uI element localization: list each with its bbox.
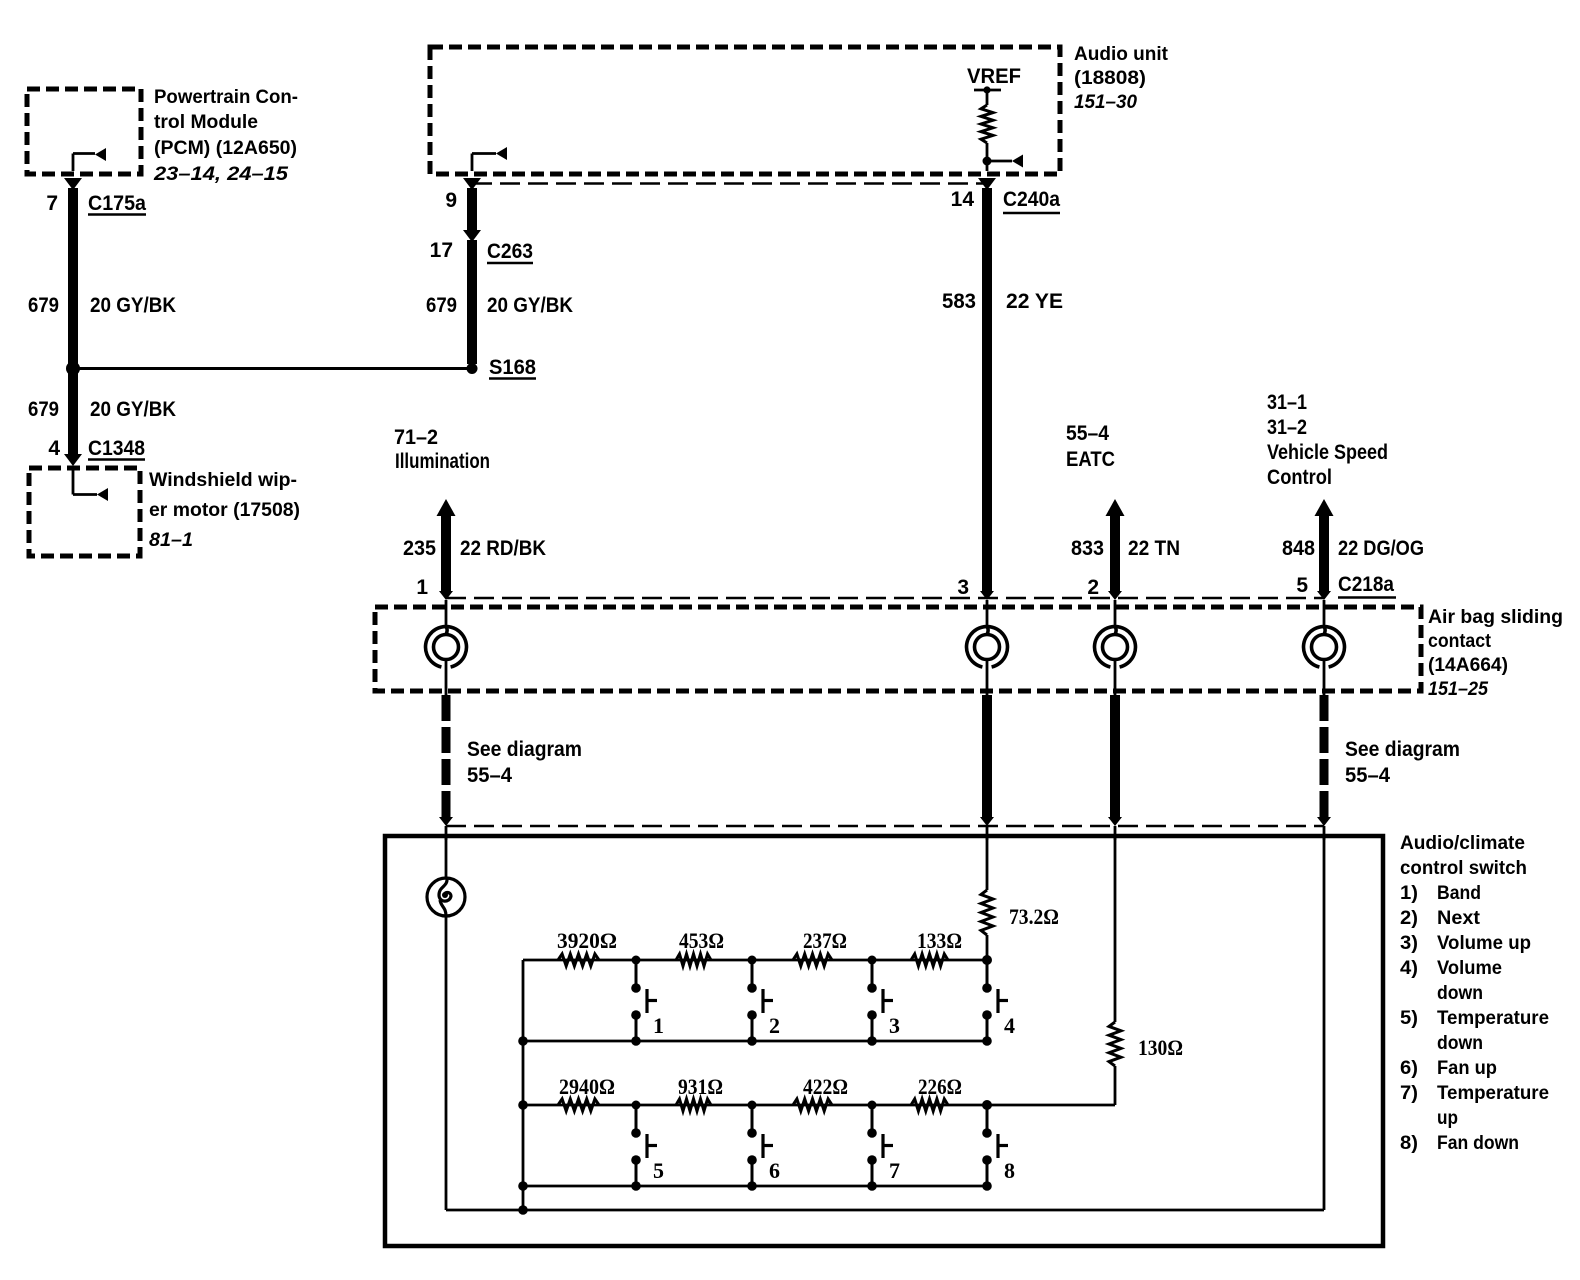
svg-text:133Ω: 133Ω bbox=[917, 928, 962, 953]
svg-text:down: down bbox=[1437, 983, 1483, 1004]
svg-text:7): 7) bbox=[1400, 1083, 1418, 1104]
svg-text:23–14, 24–15: 23–14, 24–15 bbox=[153, 164, 289, 185]
svg-text:control switch: control switch bbox=[1400, 858, 1527, 879]
svg-text:237Ω: 237Ω bbox=[803, 928, 847, 953]
svg-text:C218a: C218a bbox=[1338, 573, 1394, 596]
svg-text:4: 4 bbox=[1004, 1013, 1015, 1038]
svg-text:31–2: 31–2 bbox=[1267, 416, 1307, 439]
svg-text:151–25: 151–25 bbox=[1428, 679, 1488, 700]
svg-text:931Ω: 931Ω bbox=[678, 1074, 723, 1099]
svg-text:453Ω: 453Ω bbox=[679, 928, 724, 953]
svg-text:848: 848 bbox=[1282, 537, 1315, 560]
svg-text:71–2: 71–2 bbox=[394, 426, 438, 449]
svg-text:2940Ω: 2940Ω bbox=[559, 1074, 615, 1099]
svg-text:679: 679 bbox=[426, 294, 457, 317]
svg-text:20 GY/BK: 20 GY/BK bbox=[90, 398, 176, 421]
svg-text:3: 3 bbox=[889, 1013, 900, 1038]
svg-text:130Ω: 130Ω bbox=[1138, 1035, 1183, 1060]
svg-text:down: down bbox=[1437, 1033, 1483, 1054]
svg-text:Fan up: Fan up bbox=[1437, 1058, 1497, 1079]
svg-text:6): 6) bbox=[1400, 1058, 1418, 1079]
svg-text:C175a: C175a bbox=[88, 192, 146, 215]
svg-text:1): 1) bbox=[1400, 883, 1418, 904]
svg-text:5: 5 bbox=[653, 1158, 664, 1183]
svg-text:8: 8 bbox=[1004, 1158, 1015, 1183]
svg-text:20 GY/BK: 20 GY/BK bbox=[90, 294, 176, 317]
svg-text:Fan down: Fan down bbox=[1437, 1133, 1519, 1154]
svg-text:er motor (17508): er motor (17508) bbox=[149, 500, 300, 521]
svg-text:5): 5) bbox=[1400, 1008, 1418, 1029]
svg-text:9: 9 bbox=[445, 189, 457, 212]
svg-text:7: 7 bbox=[46, 192, 58, 215]
svg-text:679: 679 bbox=[28, 398, 59, 421]
svg-text:235: 235 bbox=[403, 537, 436, 560]
svg-text:up: up bbox=[1437, 1108, 1458, 1129]
svg-text:Air bag sliding: Air bag sliding bbox=[1428, 607, 1563, 628]
svg-text:1: 1 bbox=[653, 1013, 664, 1038]
svg-text:422Ω: 422Ω bbox=[803, 1074, 848, 1099]
svg-text:Vehicle Speed: Vehicle Speed bbox=[1267, 441, 1388, 464]
svg-text:20 GY/BK: 20 GY/BK bbox=[487, 294, 573, 317]
svg-text:5: 5 bbox=[1296, 574, 1308, 597]
svg-text:583: 583 bbox=[942, 290, 976, 313]
svg-text:VREF: VREF bbox=[967, 65, 1021, 88]
svg-text:679: 679 bbox=[28, 294, 59, 317]
svg-text:31–1: 31–1 bbox=[1267, 391, 1307, 414]
svg-text:151–30: 151–30 bbox=[1074, 92, 1137, 113]
svg-text:7: 7 bbox=[889, 1158, 900, 1183]
svg-text:2): 2) bbox=[1400, 908, 1418, 929]
svg-text:See diagram: See diagram bbox=[1345, 738, 1460, 761]
svg-text:(18808): (18808) bbox=[1074, 68, 1146, 89]
svg-text:55–4: 55–4 bbox=[467, 764, 512, 787]
svg-text:14: 14 bbox=[951, 188, 975, 211]
svg-text:Temperature: Temperature bbox=[1437, 1008, 1549, 1029]
svg-text:EATC: EATC bbox=[1066, 448, 1115, 471]
svg-text:C263: C263 bbox=[487, 240, 533, 263]
svg-text:1: 1 bbox=[416, 576, 428, 599]
svg-text:3: 3 bbox=[957, 576, 969, 599]
svg-text:55–4: 55–4 bbox=[1345, 764, 1390, 787]
svg-text:8): 8) bbox=[1400, 1133, 1418, 1154]
svg-text:17: 17 bbox=[430, 239, 453, 262]
svg-text:73.2Ω: 73.2Ω bbox=[1009, 904, 1059, 929]
svg-text:Audio/climate: Audio/climate bbox=[1400, 833, 1525, 854]
svg-text:(PCM) (12A650): (PCM) (12A650) bbox=[154, 138, 297, 159]
svg-text:Windshield wip-: Windshield wip- bbox=[149, 470, 297, 491]
svg-text:55–4: 55–4 bbox=[1066, 422, 1109, 445]
svg-text:22 TN: 22 TN bbox=[1128, 537, 1180, 560]
svg-text:22 YE: 22 YE bbox=[1006, 290, 1063, 313]
svg-text:Volume up: Volume up bbox=[1437, 933, 1531, 954]
svg-text:See diagram: See diagram bbox=[467, 738, 582, 761]
svg-text:Illumination: Illumination bbox=[395, 450, 490, 473]
svg-text:S168: S168 bbox=[489, 356, 536, 379]
svg-text:2: 2 bbox=[769, 1013, 780, 1038]
svg-text:226Ω: 226Ω bbox=[918, 1074, 962, 1099]
svg-text:3920Ω: 3920Ω bbox=[557, 928, 617, 953]
svg-text:22 RD/BK: 22 RD/BK bbox=[460, 537, 546, 560]
svg-text:Next: Next bbox=[1437, 908, 1481, 929]
svg-text:3): 3) bbox=[1400, 933, 1418, 954]
svg-text:81–1: 81–1 bbox=[149, 530, 193, 551]
svg-text:6: 6 bbox=[769, 1158, 780, 1183]
svg-text:contact: contact bbox=[1428, 631, 1492, 652]
svg-text:C240a: C240a bbox=[1003, 188, 1060, 211]
svg-text:833: 833 bbox=[1071, 537, 1104, 560]
svg-text:Volume: Volume bbox=[1437, 958, 1502, 979]
svg-text:C1348: C1348 bbox=[88, 437, 145, 460]
svg-text:trol Module: trol Module bbox=[154, 112, 258, 133]
svg-text:Band: Band bbox=[1437, 883, 1481, 904]
svg-text:Control: Control bbox=[1267, 466, 1332, 489]
svg-text:Powertrain Con-: Powertrain Con- bbox=[154, 87, 298, 108]
svg-text:Temperature: Temperature bbox=[1437, 1083, 1549, 1104]
svg-text:2: 2 bbox=[1087, 576, 1099, 599]
svg-text:22 DG/OG: 22 DG/OG bbox=[1338, 537, 1424, 560]
svg-text:4): 4) bbox=[1400, 958, 1418, 979]
svg-text:Audio unit: Audio unit bbox=[1074, 44, 1169, 65]
svg-text:4: 4 bbox=[48, 437, 60, 460]
svg-text:(14A664): (14A664) bbox=[1428, 655, 1508, 676]
